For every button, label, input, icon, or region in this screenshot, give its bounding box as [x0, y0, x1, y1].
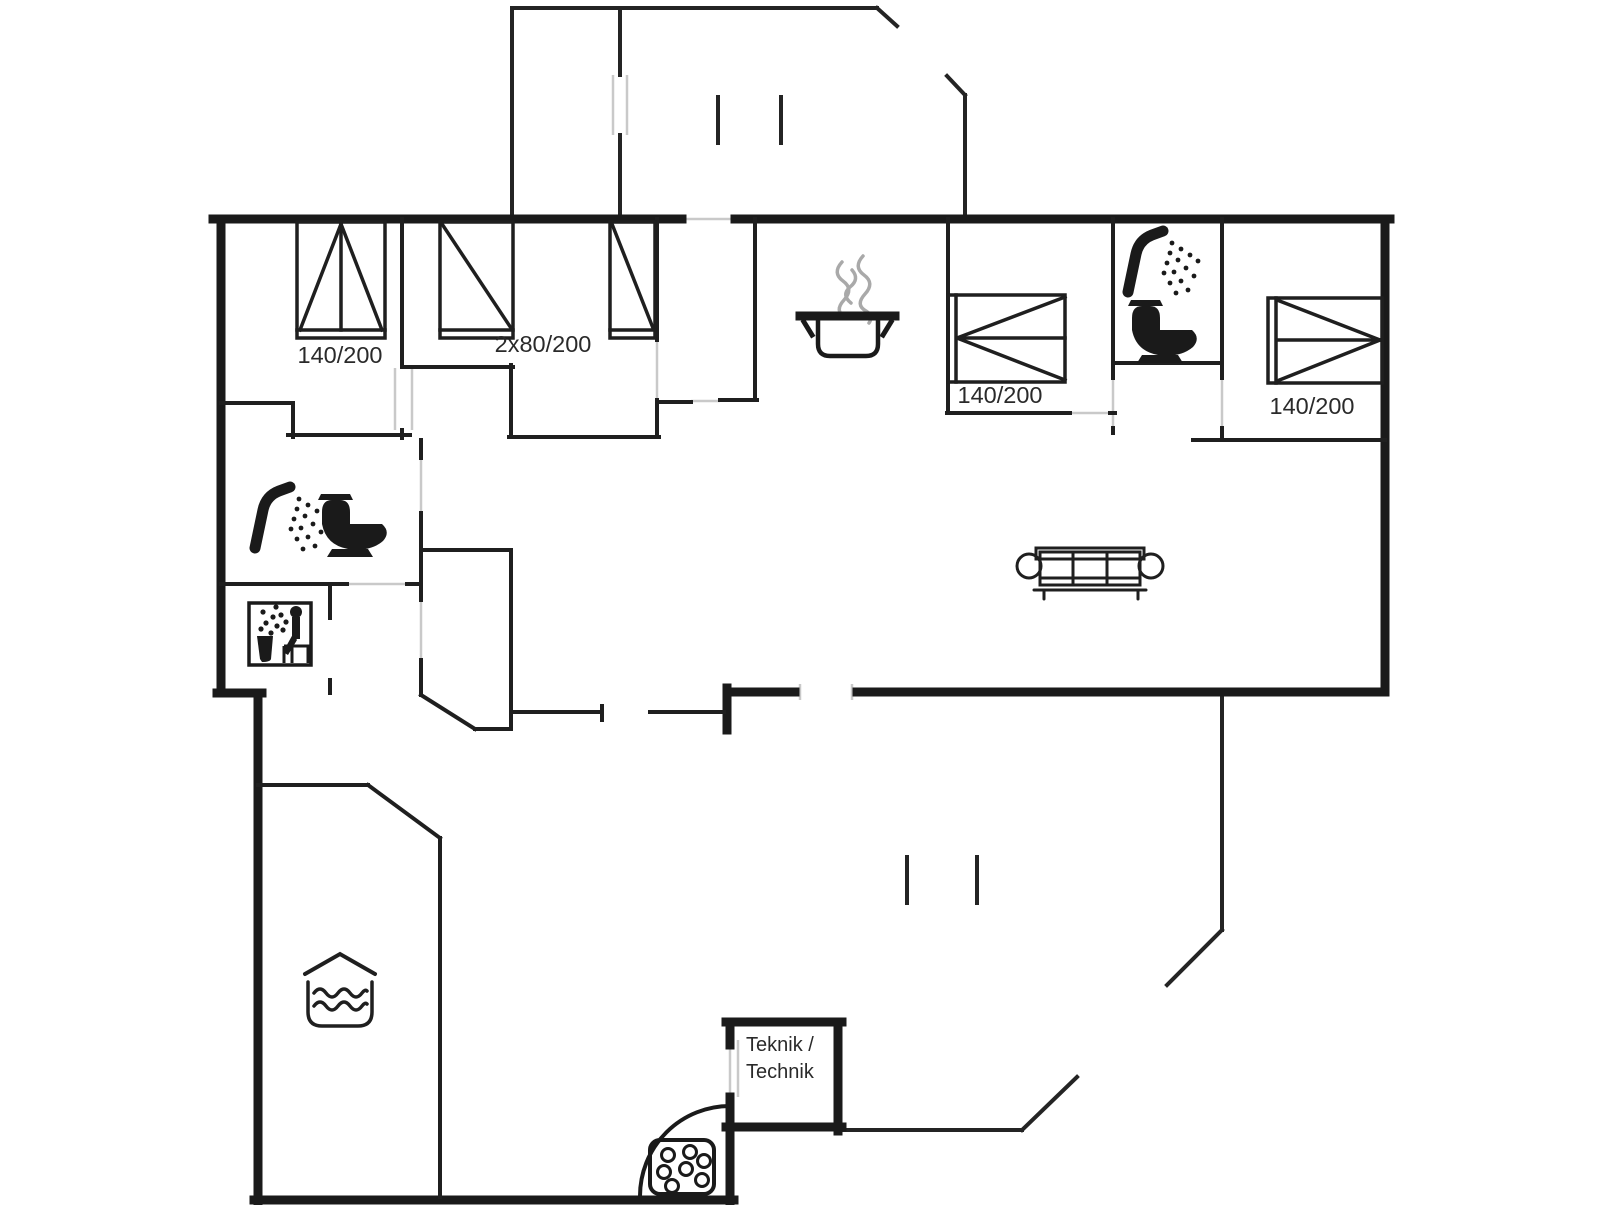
shower-icon-2 [255, 487, 327, 551]
door-swing-marks-south-room [907, 855, 977, 905]
technical-room-label-line1: Teknik / [746, 1034, 814, 1056]
terrace-outline-top [512, 8, 965, 219]
stove-stones-icon [640, 1106, 730, 1196]
toilet-icon-1 [1128, 300, 1197, 363]
shower-icon-1 [1128, 231, 1200, 295]
bed-size-label-bedroom-3: 140/200 [958, 382, 1043, 408]
shower-spray-2 [289, 497, 328, 552]
toilet-icon-2 [318, 494, 387, 557]
floor-plan-page: 140/200 2x80/200 140/200 140/200 Teknik … [0, 0, 1606, 1205]
bed-bedroom-4 [1268, 298, 1382, 383]
bed-size-label-bedroom-4: 140/200 [1270, 393, 1355, 419]
bed-size-label-bedroom-1: 140/200 [298, 342, 383, 368]
cooking-pot-icon [800, 256, 895, 356]
sofa-icon [1017, 548, 1163, 599]
sauna-icon [249, 603, 311, 665]
bed-bedroom-2-left [440, 222, 513, 338]
bed-bedroom-1 [297, 222, 385, 338]
floor-plan-drawing: 140/200 2x80/200 140/200 140/200 Teknik … [0, 0, 1606, 1205]
pool-icon [305, 954, 375, 1026]
bed-size-label-bedroom-2: 2x80/200 [495, 331, 592, 357]
door-swing-marks-terrace [718, 95, 781, 145]
bed-bedroom-2-right [610, 222, 655, 338]
technical-room-label-line2: Technik [746, 1061, 815, 1083]
exterior-walls [213, 219, 1390, 1205]
shower-spray-1 [1162, 241, 1201, 296]
terrace-outline-bottom-right [842, 696, 1222, 1130]
bed-bedroom-3 [948, 295, 1065, 382]
